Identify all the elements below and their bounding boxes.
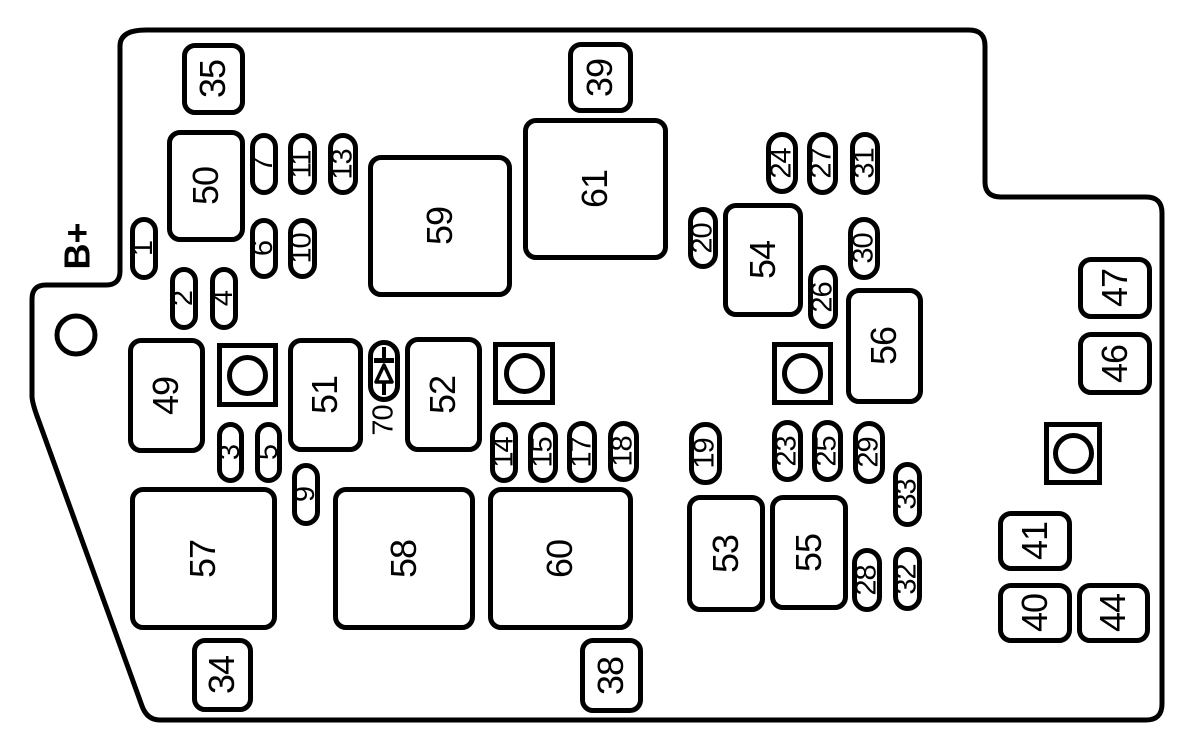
fuse-9: 9: [292, 463, 320, 526]
fuse-2: 2: [170, 267, 198, 330]
relay-49-label: 49: [148, 376, 184, 414]
fuse-10-label: 10: [288, 233, 317, 263]
relay-34: 34: [192, 638, 253, 712]
relay-38-label: 38: [593, 656, 629, 694]
bolt-stud-2-circle-icon: [504, 353, 545, 394]
relay-61-label: 61: [577, 170, 613, 208]
fuse-33-label: 33: [893, 479, 922, 509]
fuse-7: 7: [250, 133, 278, 195]
fuse-2-label: 2: [169, 291, 198, 306]
relay-51: 51: [288, 338, 363, 452]
fuse-11: 11: [288, 133, 317, 195]
fuse-9-label: 9: [291, 487, 320, 502]
fuse-20: 20: [688, 207, 718, 269]
fuse-1: 1: [130, 217, 158, 280]
relay-61: 61: [523, 118, 668, 260]
relay-56-label: 56: [866, 327, 902, 365]
fuse-31-label: 31: [851, 148, 880, 178]
battery-terminal-label: B+: [46, 206, 110, 286]
fuse-1-label: 1: [129, 241, 158, 256]
fuse-26: 26: [808, 265, 838, 329]
relay-53: 53: [687, 495, 765, 612]
relay-56: 56: [846, 288, 923, 404]
relay-55-label: 55: [791, 533, 827, 571]
bolt-stud-4: [1044, 422, 1102, 485]
relay-40-label: 40: [1017, 594, 1053, 632]
fuse-15: 15: [528, 422, 558, 483]
diode-70-label-wrap: 70: [358, 401, 410, 439]
relay-50-label: 50: [188, 167, 224, 205]
relay-52: 52: [405, 337, 482, 452]
fuse-29-label: 29: [855, 437, 884, 467]
relay-59-label: 59: [422, 207, 458, 245]
relay-40: 40: [998, 583, 1072, 643]
fuse-17: 17: [567, 421, 597, 483]
bolt-stud-2: [493, 342, 555, 405]
fuse-6: 6: [250, 218, 278, 279]
relay-53-label: 53: [708, 534, 744, 572]
relay-57: 57: [130, 487, 277, 630]
relay-47-label: 47: [1097, 269, 1133, 307]
relay-38: 38: [580, 638, 643, 713]
fuse-28-label: 28: [853, 565, 882, 595]
relay-34-label: 34: [204, 656, 240, 694]
relay-44-label: 44: [1095, 594, 1131, 632]
relay-39-label: 39: [582, 58, 618, 96]
fuse-box-diagram: B+ 70 3550396159545647464951525758605355…: [0, 0, 1191, 743]
fuse-15-label: 15: [529, 437, 558, 467]
diode-icon: [373, 345, 395, 397]
relay-35-label: 35: [195, 60, 231, 98]
fuse-23: 23: [772, 420, 803, 482]
bolt-stud-3: [772, 342, 833, 405]
relay-60: 60: [488, 487, 633, 630]
fuse-27-label: 27: [808, 148, 837, 178]
fuse-32: 32: [893, 547, 922, 611]
fuse-29: 29: [853, 421, 885, 484]
fuse-20-label: 20: [689, 223, 718, 253]
fuse-30-label: 30: [850, 233, 879, 263]
fuse-13: 13: [328, 133, 358, 195]
relay-39: 39: [568, 42, 633, 113]
fuse-18: 18: [608, 421, 639, 482]
fuse-5-label: 5: [254, 445, 283, 460]
fuse-19: 19: [689, 422, 722, 485]
fuse-33: 33: [893, 462, 922, 527]
diode-70: [368, 340, 400, 402]
fuse-17-label: 17: [568, 437, 597, 467]
battery-terminal-text: B+: [60, 222, 96, 269]
fuse-14: 14: [490, 422, 518, 483]
relay-57-label: 57: [185, 539, 221, 577]
bolt-stud-3-circle-icon: [782, 353, 823, 394]
relay-46-label: 46: [1097, 344, 1133, 382]
relay-35: 35: [182, 43, 245, 115]
fuse-19-label: 19: [691, 438, 720, 468]
fuse-24-label: 24: [768, 148, 797, 178]
relay-47: 47: [1078, 257, 1152, 319]
fuse-4-label: 4: [209, 291, 238, 306]
mounting-hole-icon: [57, 316, 95, 354]
relay-58-label: 58: [386, 539, 422, 577]
fuse-31: 31: [850, 132, 880, 195]
fuse-30: 30: [848, 217, 880, 280]
fuse-6-label: 6: [249, 241, 278, 256]
relay-58: 58: [333, 487, 475, 630]
relay-44: 44: [1077, 583, 1150, 643]
fuse-32-label: 32: [893, 564, 922, 594]
relay-41-label: 41: [1017, 522, 1053, 560]
relay-60-label: 60: [542, 539, 578, 577]
relay-51-label: 51: [307, 376, 343, 414]
fuse-13-label: 13: [329, 149, 358, 179]
fuse-27: 27: [807, 132, 838, 195]
fuse-24: 24: [766, 132, 798, 194]
fuse-25-label: 25: [813, 436, 842, 466]
diode-70-label: 70: [369, 405, 398, 435]
relay-55: 55: [770, 495, 848, 610]
fuse-11-label: 11: [288, 150, 317, 178]
fuse-10: 10: [288, 218, 317, 279]
bolt-stud-1-circle-icon: [227, 355, 268, 396]
bolt-stud-4-circle-icon: [1053, 433, 1094, 474]
relay-50: 50: [167, 130, 245, 242]
bolt-stud-1: [217, 343, 278, 407]
relay-52-label: 52: [425, 375, 461, 413]
fuse-4: 4: [210, 267, 238, 330]
fuse-18-label: 18: [609, 436, 638, 466]
fuse-25: 25: [812, 420, 843, 482]
fuse-5: 5: [255, 422, 282, 483]
fuse-14-label: 14: [490, 437, 519, 467]
fuse-28: 28: [852, 548, 882, 612]
relay-59: 59: [368, 155, 512, 297]
fuse-23-label: 23: [773, 436, 802, 466]
relay-54: 54: [723, 203, 803, 317]
fuse-7-label: 7: [249, 156, 278, 171]
relay-54-label: 54: [745, 241, 781, 279]
relay-41: 41: [998, 511, 1072, 571]
fuse-3-label: 3: [216, 445, 245, 460]
fuse-3: 3: [217, 422, 244, 483]
relay-46: 46: [1078, 332, 1152, 395]
relay-49: 49: [128, 338, 205, 453]
fuse-26-label: 26: [809, 282, 838, 312]
